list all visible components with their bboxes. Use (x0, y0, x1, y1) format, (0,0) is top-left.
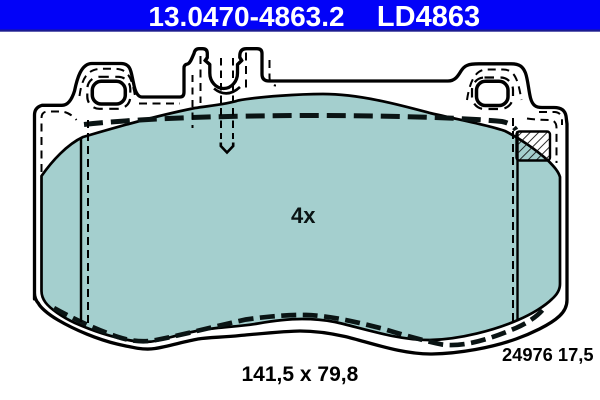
svg-text:141,5 x 79,8: 141,5 x 79,8 (242, 363, 359, 386)
svg-text:24976 17,5: 24976 17,5 (502, 344, 594, 365)
svg-text:4x: 4x (291, 203, 316, 228)
svg-text:13.0470-4863.2: 13.0470-4863.2 (148, 1, 344, 32)
svg-text:LD4863: LD4863 (377, 1, 480, 33)
